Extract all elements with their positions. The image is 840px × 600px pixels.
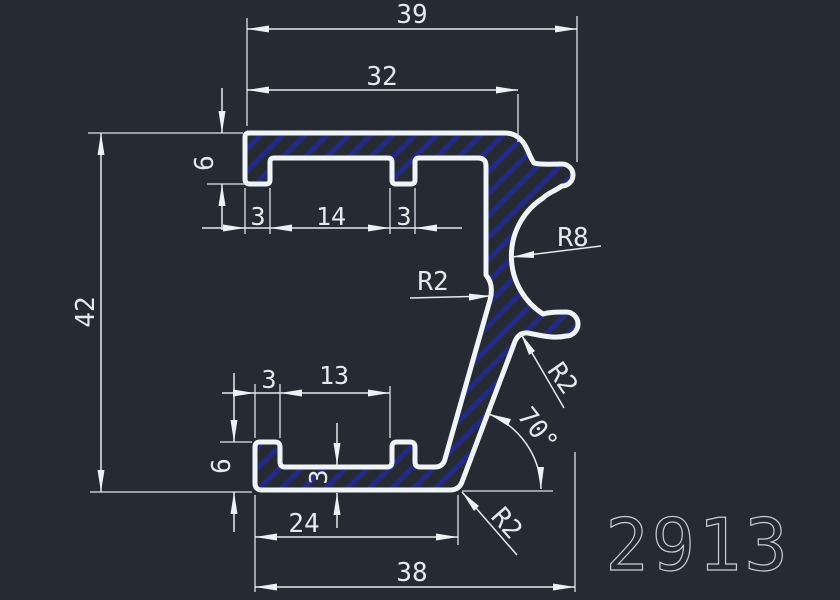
dim-top-hook-radius: R8: [557, 223, 588, 253]
dim-top-leg-depth: 6: [190, 155, 220, 171]
dim-corner-radius: R2: [485, 502, 528, 545]
dim-angle: 70°: [511, 402, 564, 457]
dim-overall-height: 42: [71, 296, 101, 327]
dim-top-recess-width: 14: [316, 202, 346, 231]
profile-drawing: 39 32 42 6 3 14 3 R2 R8 R2 70° R2 3 13 6…: [0, 0, 840, 600]
dim-top-leg-width: 3: [250, 202, 265, 231]
dim-mid-radius: R2: [417, 267, 448, 297]
dim-bottom-leg-width: 3: [261, 365, 276, 394]
dim-top-overall: 39: [396, 0, 427, 30]
dim-lower-hook-radius: R2: [541, 357, 584, 400]
cad-viewport: 39 32 42 6 3 14 3 R2 R8 R2 70° R2 3 13 6…: [0, 0, 840, 600]
dim-bottom-overall: 38: [396, 558, 427, 588]
part-number: 2913: [605, 503, 790, 587]
dim-bottom-inner-width: 24: [288, 509, 319, 539]
dim-top-tab-width: 3: [396, 202, 411, 231]
dim-bottom-floor-thickness: 3: [304, 469, 333, 484]
dim-bottom-recess-width: 13: [319, 361, 349, 390]
dim-bottom-leg-depth: 6: [207, 458, 237, 474]
dim-top-inner: 32: [366, 62, 397, 92]
